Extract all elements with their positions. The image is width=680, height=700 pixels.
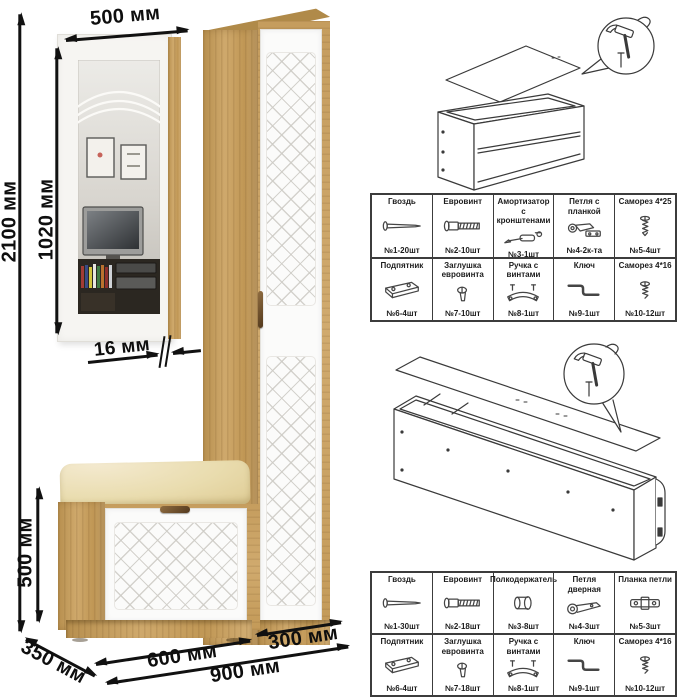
hardware-item: Ручка с винтами№8-1шт (493, 259, 554, 321)
hardware-item-qty: №6-4шт (386, 684, 417, 693)
hardware-item-label: Евровинт (443, 575, 482, 585)
bench-door-quilt (114, 522, 238, 610)
hex-key-icon (555, 647, 613, 684)
bench-flap-door[interactable] (105, 508, 247, 622)
tv-reflection (83, 207, 143, 259)
hardware-item-qty: №2-18шт (445, 622, 481, 631)
hardware-item-label: Заглушка евровинта (434, 637, 492, 656)
hardware-item-qty: №9-1шт (569, 684, 600, 693)
shelf-pin-icon (495, 585, 553, 622)
hardware-item-label: Саморез 4*25 (619, 197, 672, 207)
handle-icon (495, 280, 553, 309)
dim-label-mirror-height: 1020 мм (36, 176, 59, 264)
shoe-bench (58, 462, 260, 644)
hardware-row: Подпятник№6-4штЗаглушка евровинта№7-18шт… (372, 633, 675, 695)
assembly-diagram-bench (402, 2, 678, 194)
hardware-item: Евровинт№2-18шт (432, 573, 493, 633)
gas-lift-icon (495, 226, 553, 250)
hardware-item-label: Планка петли (618, 575, 672, 585)
hardware-item-qty: №7-18шт (445, 684, 481, 693)
hardware-item-qty: №1-30шт (384, 622, 420, 631)
hardware-item: Петля дверная№4-3шт (553, 573, 614, 633)
hardware-item-label: Саморез 4*16 (619, 261, 672, 271)
hinge-plate-icon (616, 585, 674, 622)
dim-arrow-thickness-right (173, 349, 201, 355)
hardware-row: Подпятник№6-4штЗаглушка евровинта№7-10шт… (372, 257, 675, 321)
mirror-panel (57, 34, 181, 342)
hardware-item-label: Ключ (574, 637, 595, 647)
hardware-item-label: Ручка с винтами (495, 637, 553, 656)
cabinet-door-handle[interactable] (258, 291, 263, 328)
dim-label-total-width: 900 мм (209, 655, 282, 688)
cabinet-hardware-table: Гвоздь№1-30штЕвровинт№2-18штПолкодержате… (370, 571, 677, 697)
hardware-item: Ключ№9-1шт (553, 635, 614, 695)
hardware-item-qty: №6-4шт (386, 309, 417, 318)
mirror-panel-edge (168, 37, 181, 339)
nail-icon (373, 207, 431, 246)
hardware-item: Заглушка евровинта№7-10шт (432, 259, 493, 321)
hardware-item-label: Петля дверная (555, 575, 613, 594)
hardware-row: Гвоздь№1-30штЕвровинт№2-18штПолкодержате… (372, 573, 675, 633)
dim-label-bench-height: 500 мм (15, 517, 38, 589)
hardware-item-label: Гвоздь (388, 575, 416, 585)
bench-plinth (66, 620, 252, 638)
hardware-item: Саморез 4*16№10-12шт (614, 635, 675, 695)
hardware-item-qty: №3-8шт (508, 622, 539, 631)
euroscrew-icon (434, 585, 492, 622)
bench-cushion (60, 460, 251, 508)
hardware-item-qty: №4-2к-та (567, 246, 603, 255)
hardware-item: Планка петли№5-3шт (614, 573, 675, 633)
nail-icon (373, 585, 431, 622)
hardware-item-label: Ручка с винтами (495, 261, 553, 280)
hardware-item-qty: №5-3шт (630, 622, 661, 631)
hardware-item-qty: №8-1шт (508, 309, 539, 318)
hardware-item-label: Полкодержатель (490, 575, 557, 585)
bench-hardware-table: Гвоздь№1-20штЕвровинт№2-10штАмортизатор … (370, 193, 677, 322)
hardware-item-label: Заглушка евровинта (434, 261, 492, 280)
dim-label-total-height: 2100 мм (0, 178, 22, 266)
hardware-item: Гвоздь№1-20шт (372, 195, 432, 257)
hardware-item-label: Подпятник (381, 637, 424, 647)
cabinet-door-quilt-upper (266, 52, 316, 306)
hardware-item-qty: №7-10шт (445, 309, 481, 318)
hardware-item-label: Амортизатор с кронштенами (495, 197, 553, 226)
screw-4x16-icon (616, 647, 674, 684)
hardware-item-label: Евровинт (443, 197, 482, 207)
euroscrew-icon (434, 207, 492, 246)
body-right-end (634, 477, 656, 560)
euroscrew-cap-icon (434, 656, 492, 684)
bench-side-panel (58, 502, 105, 630)
hardware-item: Подпятник№6-4шт (372, 259, 432, 321)
hardware-item: Амортизатор с кронштенами№3-1шт (493, 195, 554, 257)
hinge-with-plate-icon (555, 216, 613, 245)
hardware-item-label: Подпятник (381, 261, 424, 271)
cabinet-door[interactable] (260, 29, 322, 628)
mirror-glass (78, 60, 160, 314)
hardware-item-qty: №9-1шт (569, 309, 600, 318)
door-hinge-icon (555, 594, 613, 622)
bench-foot-shadow-left (72, 638, 88, 642)
hardware-item-qty: №10-12шт (625, 684, 665, 693)
hardware-item: Саморез 4*16№10-12шт (614, 259, 675, 321)
hardware-item: Ручка с винтами№8-1шт (493, 635, 554, 695)
hardware-item: Ключ№9-1шт (553, 259, 614, 321)
hardware-item: Заглушка евровинта№7-18шт (432, 635, 493, 695)
hardware-item-label: Ключ (574, 261, 595, 271)
hardware-item-qty: №1-20шт (384, 246, 420, 255)
hardware-item-label: Петля с планкой (555, 197, 613, 216)
foot-pad-icon (373, 647, 431, 684)
assembly-diagram-cabinet (388, 332, 680, 570)
hardware-item: Полкодержатель№3-8шт (493, 573, 554, 633)
screw-4x16-icon (616, 270, 674, 309)
hardware-item: Подпятник№6-4шт (372, 635, 432, 695)
back-panel (446, 46, 580, 102)
hardware-item: Гвоздь№1-30шт (372, 573, 432, 633)
screw-4x25-icon (616, 207, 674, 246)
foot-pad-icon (373, 270, 431, 309)
hardware-item-qty: №8-1шт (508, 684, 539, 693)
hardware-item-qty: №4-3шт (569, 622, 600, 631)
hardware-item-label: Гвоздь (388, 197, 416, 207)
hardware-row: Гвоздь№1-20штЕвровинт№2-10штАмортизатор … (372, 195, 675, 257)
hex-key-icon (555, 270, 613, 309)
cabinet-door-quilt-lower (266, 356, 316, 606)
hardware-item: Петля с планкой№4-2к-та (553, 195, 614, 257)
hardware-item-label: Саморез 4*16 (619, 637, 672, 647)
hardware-item: Саморез 4*25№5-4шт (614, 195, 675, 257)
hardware-item-qty: №5-4шт (630, 246, 661, 255)
furniture-assembly-sheet: 500 мм 2100 мм 1020 мм 16 мм 500 мм 350 … (0, 0, 680, 700)
handle-icon (495, 656, 553, 684)
hardware-item-qty: №10-12шт (625, 309, 665, 318)
dim-label-mirror-width: 500 мм (89, 2, 161, 31)
hardware-item-qty: №2-10шт (445, 246, 481, 255)
hardware-item: Евровинт№2-10шт (432, 195, 493, 257)
bench-door-handle[interactable] (160, 506, 190, 513)
tv-stand-reflection (78, 259, 160, 314)
euroscrew-cap-icon (434, 280, 492, 309)
